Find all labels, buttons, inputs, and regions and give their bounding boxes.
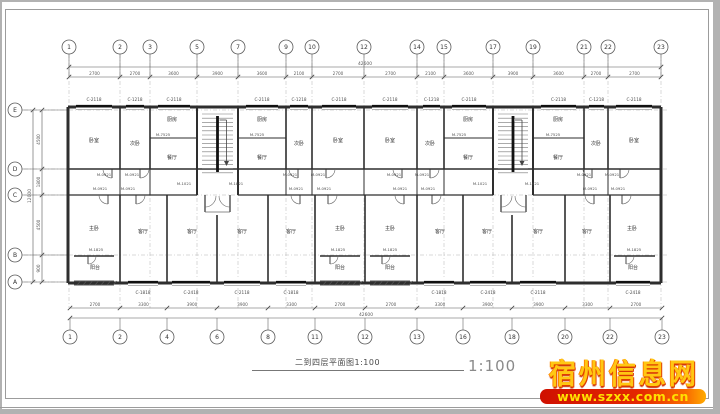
window-top-tag: C-2118 — [626, 97, 641, 102]
door-tag: M-0921 — [605, 172, 620, 177]
door-tag: M-1825 — [383, 247, 398, 252]
room-label: 客厅 — [435, 228, 445, 235]
dim-text-bottom: 3300 — [286, 302, 297, 307]
grid-bubble-label-top: 5 — [195, 44, 199, 51]
window-top-tag: C-2118 — [166, 97, 181, 102]
dim-text-top: 2100 — [425, 71, 436, 76]
door-tag: M-0921 — [393, 186, 408, 191]
dim-text-top: 3600 — [553, 71, 564, 76]
stair-arrow-head — [224, 161, 229, 166]
room-label: 厨房 — [257, 116, 267, 123]
room-label: 次卧 — [591, 140, 601, 147]
room-label: 厨房 — [167, 116, 177, 123]
window-bottom-tag: C-2418 — [480, 290, 495, 295]
door-swing-arc — [585, 195, 594, 204]
room-label: 卧室 — [333, 137, 343, 144]
door-swing-arc — [205, 196, 216, 207]
room-label: 客厅 — [237, 228, 247, 235]
door-swing-arc — [620, 169, 629, 178]
room-label: 次卧 — [130, 140, 140, 147]
room-label: 餐厅 — [463, 154, 473, 161]
grid-bubble-label-top: 19 — [529, 44, 537, 51]
room-label: 餐厅 — [553, 154, 563, 161]
grid-bubble-label-top: 1 — [67, 44, 71, 51]
door-tag: M-7525 — [546, 132, 561, 137]
window-bottom-tag: C-2418 — [625, 290, 640, 295]
room-label: 客厅 — [582, 228, 592, 235]
room-label: 阳台 — [385, 264, 395, 271]
grid-bubble-label-bottom: 18 — [508, 334, 516, 341]
grid-bubble-label-bottom: 6 — [215, 334, 219, 341]
grid-bubble-label-bottom: 22 — [606, 334, 614, 341]
dim-text-left: 1800 — [36, 176, 41, 187]
dim-text-top: 2700 — [89, 71, 100, 76]
window-top-tag: C-2118 — [254, 97, 269, 102]
door-tag: M-1021 — [177, 181, 192, 186]
room-label: 厨房 — [463, 116, 473, 123]
window-top-tag: C-2118 — [86, 97, 101, 102]
watermark: 宿州信息网 www.szxx.com.cn — [540, 352, 708, 408]
dim-text-bottom: 2700 — [335, 302, 346, 307]
stair-stringer — [216, 116, 219, 172]
grid-bubble-label-bottom: 20 — [561, 334, 569, 341]
dim-text-top: 3600 — [168, 71, 179, 76]
door-swing-arc — [501, 196, 512, 207]
dim-text-bottom: 2700 — [90, 302, 101, 307]
dim-text-bottom: 3900 — [533, 302, 544, 307]
watermark-url: www.szxx.com.cn — [557, 389, 689, 404]
dim-text-left: 900 — [36, 264, 41, 272]
dim-text-bottom: 3900 — [187, 302, 198, 307]
door-swing-arc — [291, 195, 300, 204]
dim-text-bottom: 3900 — [482, 302, 493, 307]
door-tag: M-0921 — [387, 172, 402, 177]
door-swing-arc — [622, 195, 631, 204]
window-top-tag: C-1218 — [424, 97, 439, 102]
dim-text-top-total: 42600 — [358, 61, 372, 67]
door-tag: M-7525 — [452, 132, 467, 137]
grid-bubble-label-top: 22 — [604, 44, 612, 51]
grid-bubble-label-bottom: 1 — [68, 334, 72, 341]
dim-text-bottom: 3300 — [582, 302, 593, 307]
dim-text-top: 3600 — [257, 71, 268, 76]
window-bottom-tag: C-2418 — [183, 290, 198, 295]
room-label: 客厅 — [533, 228, 543, 235]
grid-bubble-label-bottom: 13 — [413, 334, 421, 341]
door-tag: M-0921 — [93, 186, 108, 191]
watermark-site-name: 宿州信息网 — [540, 351, 708, 392]
grid-bubble-label-top: 7 — [236, 44, 240, 51]
dim-text-top: 2700 — [591, 71, 602, 76]
door-tag: M-1825 — [89, 247, 104, 252]
door-swing-arc — [432, 195, 441, 204]
room-label: 餐厅 — [257, 154, 267, 161]
watermark-banner: www.szxx.com.cn — [540, 389, 706, 404]
window-top-tag: C-2118 — [382, 97, 397, 102]
room-label: 餐厅 — [167, 154, 177, 161]
door-tag: M-0921 — [583, 186, 598, 191]
door-tag: M-1021 — [473, 181, 488, 186]
room-label: 主卧 — [627, 225, 637, 232]
title-underline — [252, 370, 464, 371]
door-swing-arc — [219, 196, 230, 207]
stair-arrow-head — [520, 161, 525, 166]
grid-bubble-label-bottom: 8 — [266, 334, 270, 341]
grid-bubble-label-top: 2 — [118, 44, 122, 51]
window-top-tag: C-1218 — [589, 97, 604, 102]
drawing-viewer-canvas: 2700270036003900360021002700270021003600… — [0, 0, 720, 414]
grid-bubble-label-left: D — [13, 166, 18, 173]
grid-bubble-label-top: 10 — [308, 44, 316, 51]
door-swing-arc — [430, 169, 439, 178]
dim-text-left-total: 12000 — [27, 189, 33, 203]
door-tag: M-1825 — [331, 247, 346, 252]
window-top-tag: C-2118 — [461, 97, 476, 102]
door-tag: M-0921 — [121, 186, 136, 191]
grid-bubble-label-bottom: 2 — [118, 334, 122, 341]
room-label: 阳台 — [628, 264, 638, 271]
window-top-tag: C-1218 — [291, 97, 306, 102]
room-label: 主卧 — [335, 225, 345, 232]
door-swing-arc — [88, 256, 96, 264]
window-bottom-tag: C-2118 — [530, 290, 545, 295]
grid-bubble-label-top: 23 — [657, 44, 665, 51]
dim-text-top: 2100 — [294, 71, 305, 76]
door-swing-arc — [140, 169, 149, 178]
dim-text-bottom: 2700 — [386, 302, 397, 307]
dim-text-top: 2700 — [629, 71, 640, 76]
door-tag: M-0921 — [311, 172, 326, 177]
room-label: 阳台 — [90, 264, 100, 271]
stair-stringer — [512, 116, 515, 172]
room-label: 客厅 — [138, 228, 148, 235]
door-tag: M-0921 — [421, 186, 436, 191]
window-bottom-tag: C-1818 — [283, 290, 298, 295]
room-label: 次卧 — [294, 140, 304, 147]
door-tag: M-0921 — [317, 186, 332, 191]
grid-bubble-label-bottom: 16 — [459, 334, 467, 341]
dim-text-top: 2700 — [333, 71, 344, 76]
room-label: 卧室 — [385, 137, 395, 144]
door-tag: M-0921 — [97, 172, 112, 177]
door-tag: M-0921 — [283, 172, 298, 177]
room-label: 阳台 — [335, 264, 345, 271]
door-swing-arc — [99, 195, 108, 204]
door-tag: M-1821 — [525, 181, 540, 186]
door-swing-arc — [626, 256, 634, 264]
room-label: 客厅 — [482, 228, 492, 235]
grid-bubble-label-top: 21 — [580, 44, 588, 51]
room-label: 卧室 — [89, 137, 99, 144]
dim-text-top: 2700 — [385, 71, 396, 76]
dim-text-bottom: 2700 — [631, 302, 642, 307]
drawing-title: 二到四层平面图1:100 — [295, 357, 380, 368]
window-bottom-tag: C-2118 — [234, 290, 249, 295]
room-label: 客厅 — [187, 228, 197, 235]
dim-text-top: 3600 — [463, 71, 474, 76]
door-tag: M-1821 — [229, 181, 244, 186]
grid-bubble-label-top: 17 — [489, 44, 497, 51]
door-swing-arc — [136, 195, 145, 204]
door-swing-arc — [328, 195, 337, 204]
door-tag: M-0921 — [415, 172, 430, 177]
room-label: 客厅 — [286, 228, 296, 235]
door-tag: M-0921 — [577, 172, 592, 177]
dim-text-left: 4500 — [36, 134, 41, 145]
grid-bubble-label-left: E — [13, 107, 17, 114]
door-tag: M-0921 — [289, 186, 304, 191]
grid-bubble-label-top: 15 — [440, 44, 448, 51]
grid-bubble-label-left: B — [13, 252, 17, 259]
door-tag: M-1825 — [627, 247, 642, 252]
grid-bubble-label-bottom: 12 — [361, 334, 369, 341]
scale-label: 1:100 — [468, 357, 516, 375]
door-swing-arc — [515, 196, 526, 207]
room-label: 主卧 — [385, 225, 395, 232]
window-top-tag: C-2118 — [331, 97, 346, 102]
dim-text-top: 3900 — [508, 71, 519, 76]
door-tag: M-7525 — [250, 132, 265, 137]
grid-bubble-label-bottom: 11 — [311, 334, 319, 341]
grid-bubble-label-top: 14 — [413, 44, 421, 51]
window-top-tag: C-2118 — [551, 97, 566, 102]
dim-text-left: 4500 — [36, 219, 41, 230]
window-bottom-tag: C-1818 — [431, 290, 446, 295]
dim-text-bottom-total: 42600 — [359, 312, 373, 318]
door-tag: M-0921 — [611, 186, 626, 191]
door-tag: M-0921 — [125, 172, 140, 177]
window-top-tag: C-1218 — [127, 97, 142, 102]
dim-text-bottom: 3300 — [435, 302, 446, 307]
grid-bubble-label-left: C — [13, 192, 17, 199]
room-label: 卧室 — [629, 137, 639, 144]
dim-text-bottom: 3300 — [138, 302, 149, 307]
grid-bubble-label-top: 3 — [148, 44, 152, 51]
dim-text-top: 2700 — [130, 71, 141, 76]
room-label: 次卧 — [425, 140, 435, 147]
door-swing-arc — [395, 195, 404, 204]
grid-bubble-label-top: 9 — [284, 44, 288, 51]
door-swing-arc — [382, 256, 390, 264]
window-bottom-tag: C-1818 — [135, 290, 150, 295]
door-swing-arc — [326, 169, 335, 178]
grid-bubble-label-bottom: 4 — [165, 334, 169, 341]
door-swing-arc — [330, 256, 338, 264]
grid-bubble-label-bottom: 23 — [658, 334, 666, 341]
room-label: 厨房 — [553, 116, 563, 123]
room-label: 主卧 — [89, 225, 99, 232]
door-tag: M-7525 — [156, 132, 171, 137]
dim-text-top: 3900 — [212, 71, 223, 76]
dim-text-bottom: 3900 — [237, 302, 248, 307]
grid-bubble-label-top: 12 — [360, 44, 368, 51]
